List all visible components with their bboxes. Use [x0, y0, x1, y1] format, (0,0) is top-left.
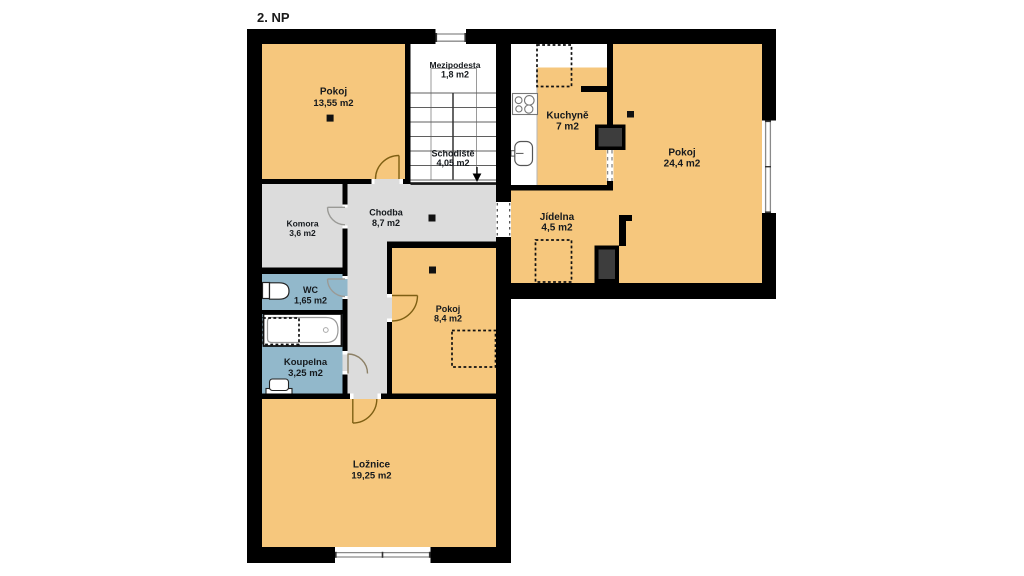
svg-text:Pokoj: Pokoj	[436, 304, 461, 314]
svg-text:7 m2: 7 m2	[556, 122, 579, 133]
svg-text:WC: WC	[303, 285, 318, 295]
svg-text:Chodba: Chodba	[369, 208, 403, 218]
svg-text:3,6 m2: 3,6 m2	[289, 228, 316, 238]
svg-text:8,7 m2: 8,7 m2	[372, 218, 400, 228]
svg-text:Kuchyně: Kuchyně	[546, 111, 589, 122]
svg-text:Ložnice: Ložnice	[353, 460, 391, 471]
svg-text:Koupelna: Koupelna	[284, 357, 328, 368]
svg-text:13,55 m2: 13,55 m2	[313, 98, 353, 109]
svg-text:3,25 m2: 3,25 m2	[288, 368, 323, 379]
svg-text:Jídelna: Jídelna	[540, 212, 575, 223]
svg-text:Pokoj: Pokoj	[668, 148, 695, 159]
svg-text:1,8 m2: 1,8 m2	[441, 70, 469, 80]
svg-text:Komora: Komora	[286, 219, 318, 229]
svg-text:19,25 m2: 19,25 m2	[351, 471, 391, 482]
svg-text:Pokoj: Pokoj	[320, 87, 347, 98]
svg-text:4,5 m2: 4,5 m2	[541, 223, 573, 234]
svg-text:1,65 m2: 1,65 m2	[294, 296, 327, 306]
svg-text:4,05 m2: 4,05 m2	[436, 158, 469, 168]
svg-text:8,4 m2: 8,4 m2	[434, 314, 462, 324]
svg-text:Mezipodesta: Mezipodesta	[429, 60, 480, 70]
svg-text:Schodiště: Schodiště	[431, 149, 474, 159]
svg-text:24,4 m2: 24,4 m2	[664, 159, 701, 170]
svg-text:2. NP: 2. NP	[257, 10, 290, 25]
